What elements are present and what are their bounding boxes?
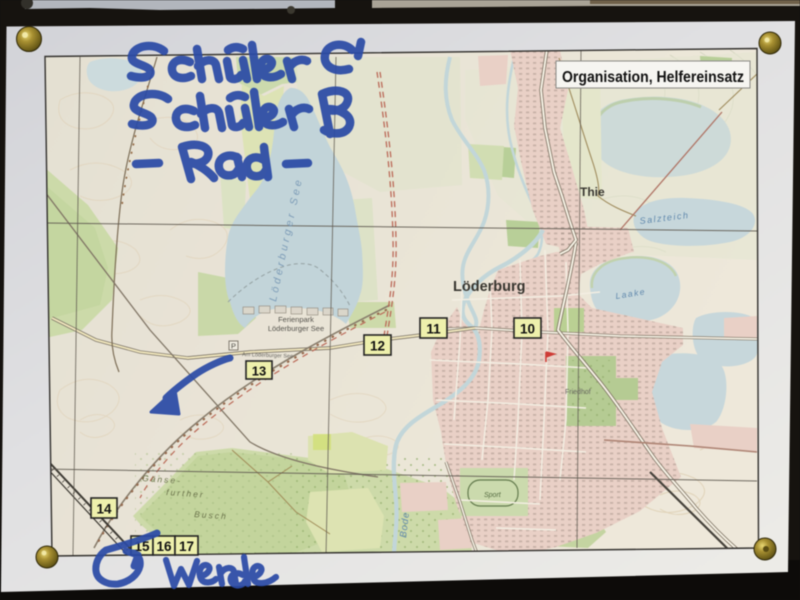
svg-text:Organisation, Helfereinsatz: Organisation, Helfereinsatz (562, 69, 744, 86)
svg-text:16: 16 (156, 539, 172, 554)
svg-text:17: 17 (179, 539, 194, 554)
svg-text:14: 14 (96, 502, 112, 517)
svg-text:11: 11 (426, 322, 441, 337)
svg-text:10: 10 (520, 322, 535, 337)
svg-text:12: 12 (370, 339, 385, 354)
svg-text:13: 13 (252, 364, 266, 379)
